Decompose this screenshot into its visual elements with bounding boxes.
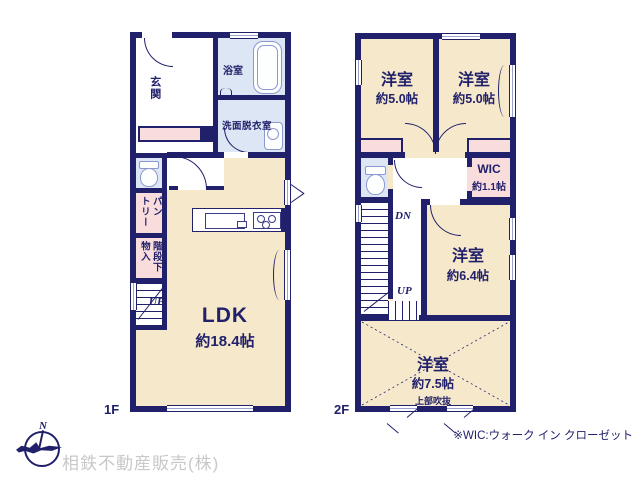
room-label-bedroom-c: 洋室: [452, 242, 484, 266]
kitchen-stove: [253, 212, 281, 229]
floorplan-canvas: 玄関 浴室 洗面脱衣室 パン トリー 階段下 物入 UP LDK 約18.4帖 …: [0, 0, 640, 480]
room-label-under-stairs: 階段下 物入: [138, 241, 162, 273]
room-label-washroom: 洗面脱衣室: [222, 118, 272, 132]
room-label-pantry: パン トリー: [138, 196, 162, 228]
room-size-bedroom-a: 約5.0帖: [376, 88, 418, 107]
floorplan-2f: 洋室 約5.0帖 洋室 約5.0帖 WIC 約1.1帖 DN UP 洋室 約6.…: [355, 33, 516, 412]
room-label-genkan: 玄関: [147, 76, 161, 100]
wall: [433, 39, 439, 152]
entrance-step: [138, 126, 202, 142]
floorplan-1f: 玄関 浴室 洗面脱衣室 パン トリー 階段下 物入 UP LDK 約18.4帖: [130, 32, 291, 412]
wall: [388, 202, 393, 299]
door-opening: [430, 199, 460, 205]
wall: [206, 186, 224, 190]
window: [355, 60, 362, 85]
window: [284, 250, 291, 300]
door-opening: [224, 152, 248, 158]
room-label-bath: 浴室: [223, 62, 243, 77]
floor-label-1f: 1F: [104, 402, 119, 417]
bathtub-icon: [253, 41, 282, 94]
wall: [136, 188, 162, 193]
bedroom-door-arc: [430, 205, 461, 236]
stairs-up-label: UP: [149, 296, 164, 308]
room-label-bedroom-a: 洋室: [381, 66, 413, 90]
burner-icon: [262, 221, 270, 229]
wall: [136, 325, 167, 330]
kitchen-faucet-icon: [237, 221, 247, 228]
room-label-bedroom-d: 洋室: [417, 351, 449, 375]
stairs-lower-flight: [388, 301, 419, 320]
wic-note: ※WIC:ウォーク イン クローゼット: [383, 427, 633, 443]
wall: [421, 205, 427, 315]
wall: [202, 126, 213, 142]
bathtub-inner: [257, 45, 278, 90]
window: [167, 405, 253, 412]
room-label-ldk: LDK: [202, 304, 248, 328]
window: [230, 32, 258, 39]
room-size-bedroom-b: 約5.0帖: [453, 88, 495, 107]
stairs-dn-label: DN: [395, 210, 411, 222]
room-label-wic: WIC: [477, 162, 500, 176]
wall: [467, 158, 472, 167]
room-size-wic: 約1.1帖: [472, 178, 506, 193]
wall: [136, 233, 162, 238]
floor-label-2f: 2F: [334, 402, 349, 417]
wall: [388, 158, 393, 165]
compass-north-label: N: [39, 420, 47, 432]
wall: [136, 278, 162, 283]
void-label: 上部吹抜: [415, 394, 451, 407]
front-door-opening: [142, 32, 172, 38]
toilet-icon: [366, 174, 385, 195]
kitchen-counter: [192, 208, 282, 232]
stairs-up-label: UP: [397, 285, 412, 297]
window: [509, 65, 516, 117]
window: [509, 218, 516, 240]
bath-door-mark: [220, 88, 232, 96]
wall: [361, 152, 405, 158]
room-size-bedroom-d: 約7.5帖: [412, 373, 454, 392]
room-size-bedroom-c: 約6.4帖: [447, 265, 489, 284]
window: [130, 283, 137, 310]
closet: [361, 138, 403, 152]
window: [442, 33, 480, 40]
company-name: 相鉄不動産販売(株): [62, 449, 219, 474]
window-swing-mark: [291, 193, 305, 203]
toilet-icon: [140, 168, 158, 187]
window: [355, 205, 362, 222]
stairs: [361, 202, 388, 315]
closet: [467, 138, 510, 152]
room-label-bedroom-b: 洋室: [458, 66, 490, 90]
bedroom-door-arc: [435, 123, 466, 154]
bedroom-door-arc: [405, 123, 436, 154]
room-size-ldk: 約18.4帖: [195, 330, 254, 351]
window: [509, 255, 516, 280]
compass-icon: N: [16, 421, 64, 469]
